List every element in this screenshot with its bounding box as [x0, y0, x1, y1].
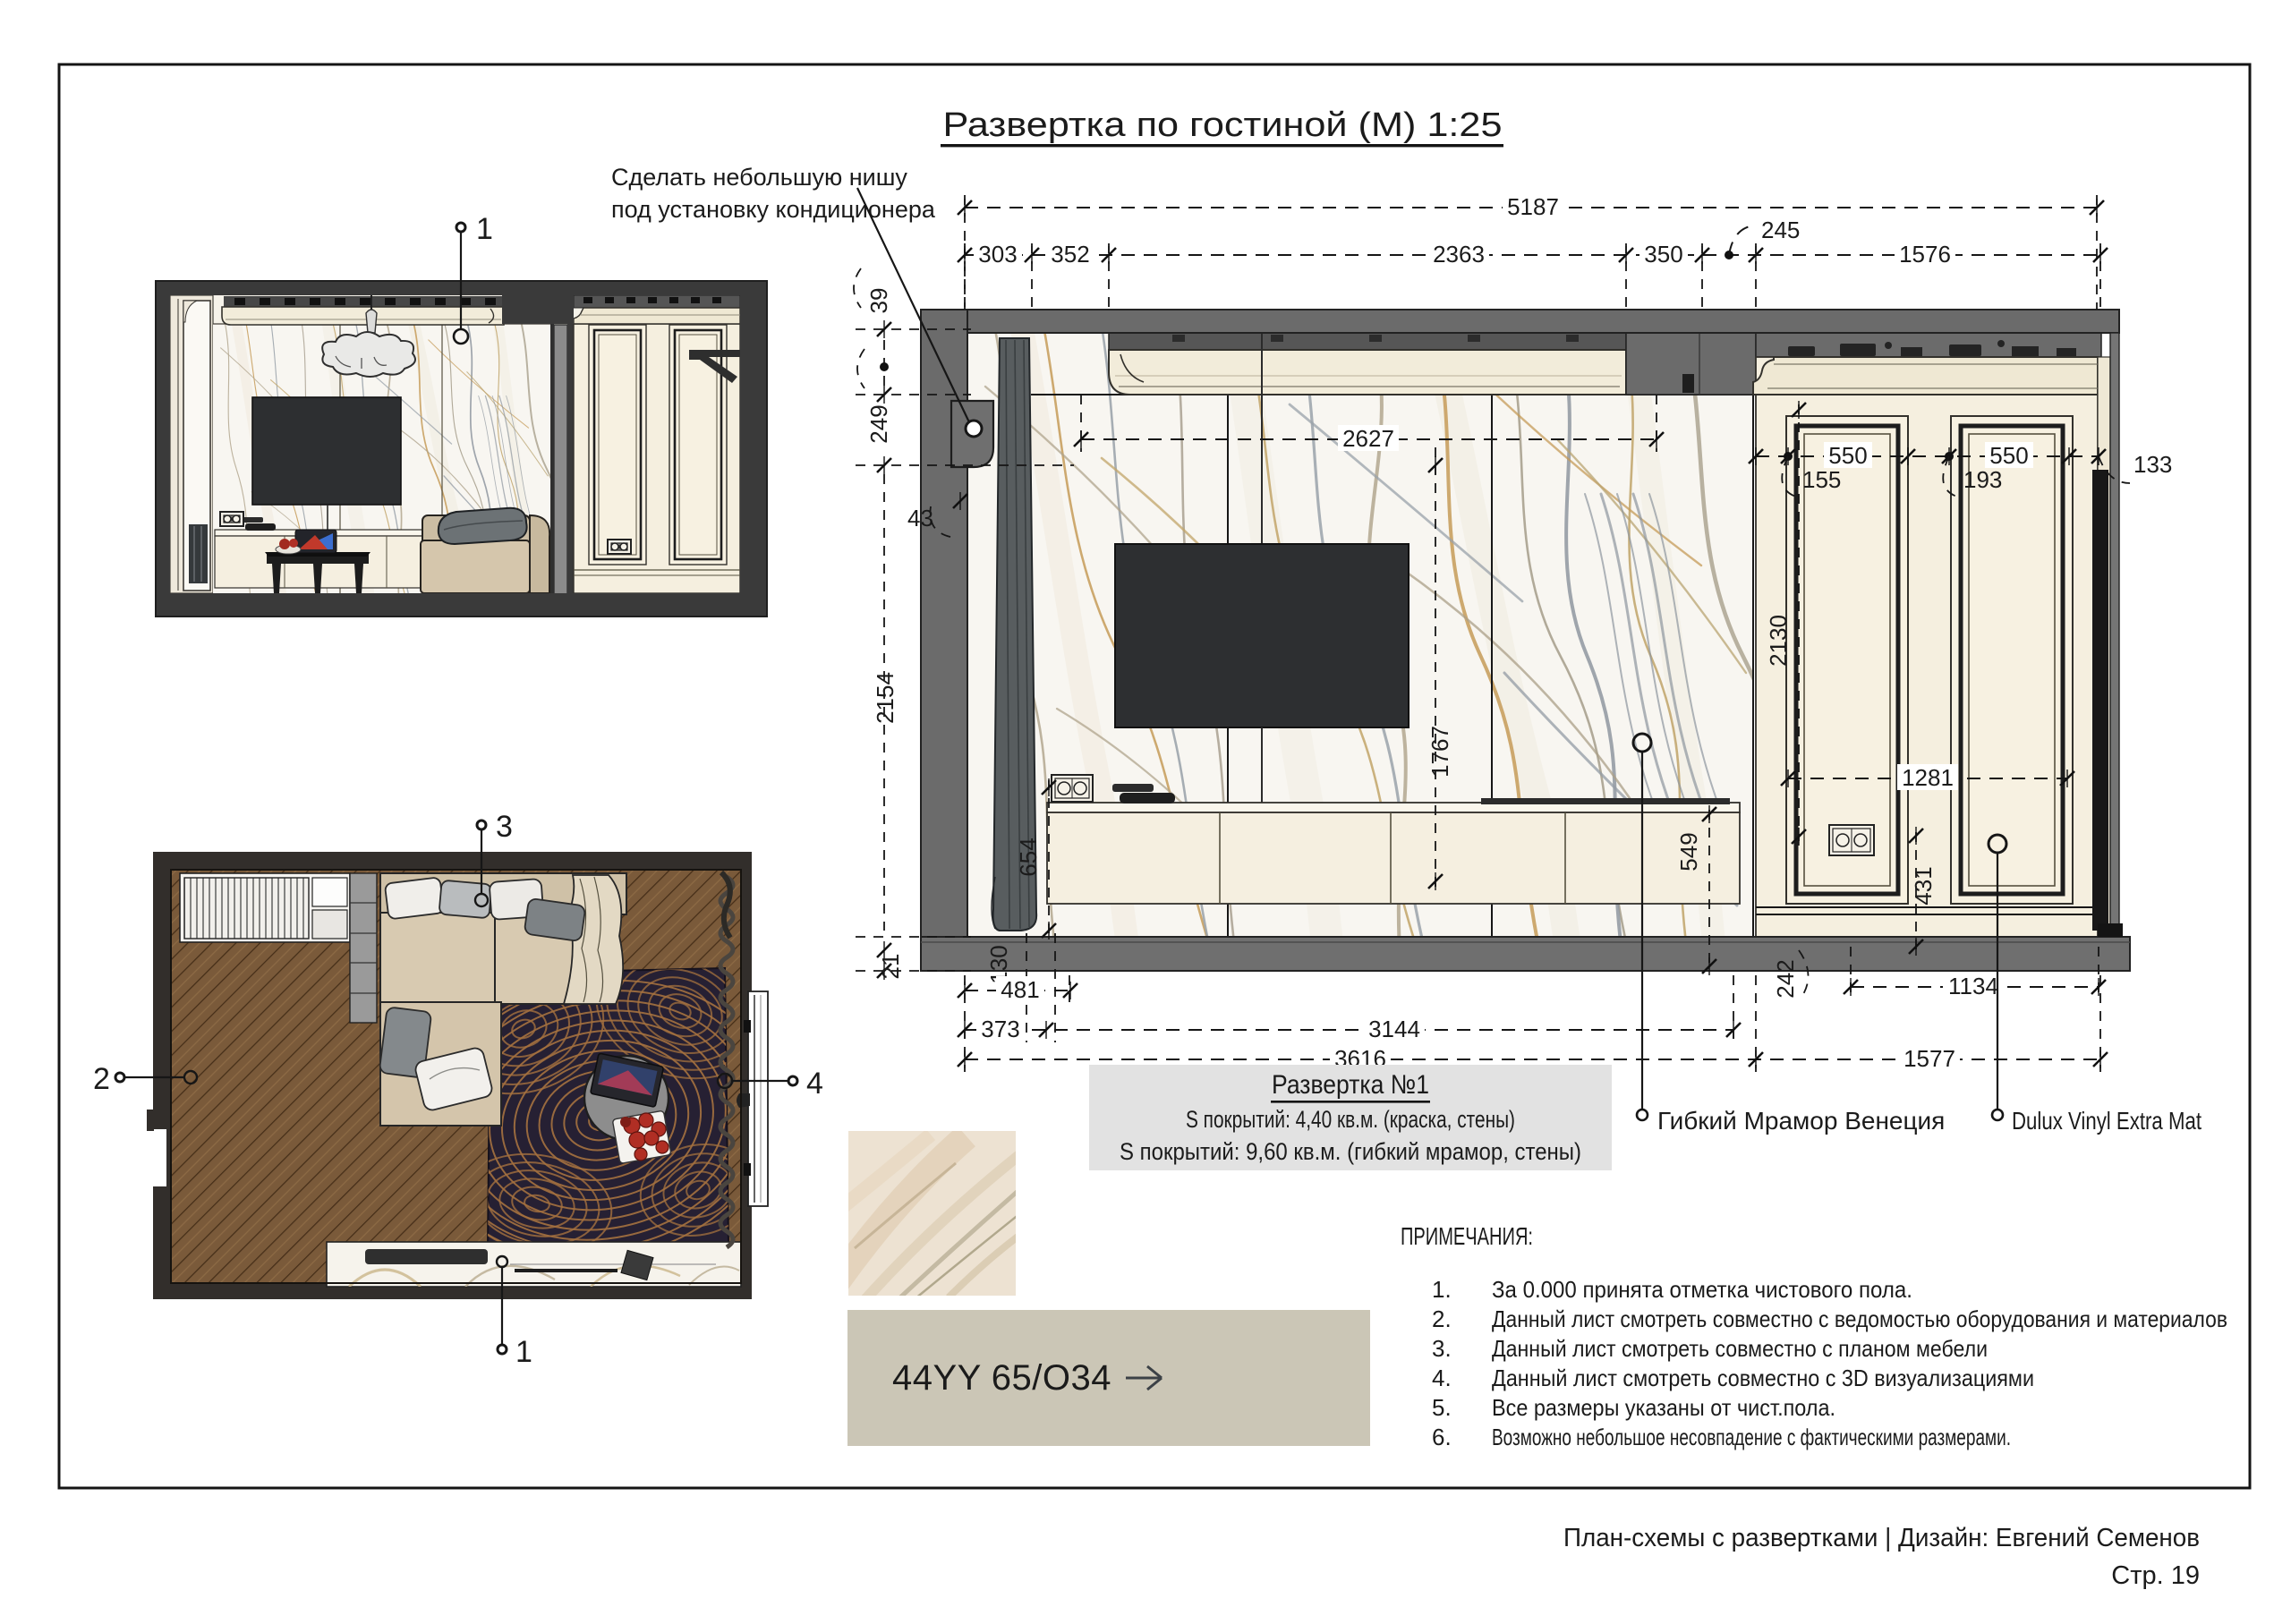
svg-text:350: 350 — [1644, 241, 1682, 268]
svg-text:Возможно небольшое несовпадени: Возможно небольшое несовпадение с фактич… — [1492, 1424, 2011, 1450]
svg-text:План-схемы с развертками | Диз: План-схемы с развертками | Дизайн: Евген… — [1563, 1524, 2200, 1552]
svg-text:Данный лист смотреть совместно: Данный лист смотреть совместно с 3D визу… — [1492, 1365, 2034, 1391]
svg-text:1281: 1281 — [1902, 764, 1954, 791]
svg-text:3.: 3. — [1432, 1335, 1452, 1362]
svg-text:1: 1 — [476, 212, 493, 246]
svg-text:За 0.000 принята отметка чисто: За 0.000 принята отметка чистового пола. — [1492, 1276, 1912, 1303]
svg-text:2154: 2154 — [872, 672, 899, 724]
svg-text:242: 242 — [1772, 959, 1799, 998]
svg-text:193: 193 — [1963, 466, 2002, 493]
svg-text:303: 303 — [978, 241, 1017, 268]
svg-text:3144: 3144 — [1368, 1016, 1420, 1042]
svg-text:1577: 1577 — [1903, 1045, 1955, 1072]
svg-text:Dulux Vinyl Extra Mat: Dulux Vinyl Extra Mat — [2012, 1107, 2202, 1135]
svg-text:2: 2 — [93, 1062, 110, 1096]
svg-text:654: 654 — [1015, 838, 1042, 876]
svg-text:2363: 2363 — [1433, 241, 1485, 268]
svg-text:43: 43 — [907, 505, 933, 531]
svg-text:431: 431 — [1910, 866, 1937, 905]
svg-text:ПРИМЕЧАНИЯ:: ПРИМЕЧАНИЯ: — [1401, 1222, 1533, 1250]
svg-text:373: 373 — [981, 1016, 1019, 1042]
svg-text:1767: 1767 — [1427, 726, 1453, 778]
svg-text:2130: 2130 — [1765, 615, 1792, 667]
svg-text:S покрытий: 4,40 кв.м. (краска: S покрытий: 4,40 кв.м. (краска, стены) — [1186, 1106, 1515, 1133]
svg-text:44YY 65/O34: 44YY 65/O34 — [892, 1358, 1111, 1398]
svg-text:Гибкий Мрамор Венеция: Гибкий Мрамор Венеция — [1657, 1107, 1945, 1135]
svg-text:1134: 1134 — [1948, 973, 1998, 999]
svg-text:Развертка по гостиной (М) 1:25: Развертка по гостиной (М) 1:25 — [943, 106, 1503, 144]
svg-text:2627: 2627 — [1342, 425, 1394, 452]
svg-text:249: 249 — [865, 404, 892, 443]
svg-text:549: 549 — [1675, 832, 1702, 871]
svg-text:5.: 5. — [1432, 1394, 1452, 1421]
svg-text:352: 352 — [1051, 241, 1089, 268]
svg-text:481: 481 — [1001, 976, 1039, 1003]
svg-text:2.: 2. — [1432, 1305, 1452, 1332]
svg-text:245: 245 — [1761, 217, 1800, 243]
svg-text:Стр. 19: Стр. 19 — [2111, 1561, 2200, 1590]
svg-text:Все размеры указаны от чист.по: Все размеры указаны от чист.пола. — [1492, 1394, 1835, 1421]
svg-text:21: 21 — [877, 954, 904, 980]
svg-text:550: 550 — [1989, 442, 2028, 469]
svg-text:Сделать небольшую нишу: Сделать небольшую нишу — [611, 164, 907, 191]
svg-text:Развертка №1: Развертка №1 — [1272, 1070, 1429, 1100]
svg-text:6.: 6. — [1432, 1424, 1452, 1450]
svg-text:4: 4 — [806, 1067, 823, 1101]
svg-text:133: 133 — [2133, 451, 2172, 478]
svg-text:1576: 1576 — [1899, 241, 1951, 268]
svg-text:под установку кондиционера: под установку кондиционера — [611, 196, 936, 223]
svg-text:4.: 4. — [1432, 1365, 1452, 1391]
svg-text:S покрытий: 9,60 кв.м. (гибкий: S покрытий: 9,60 кв.м. (гибкий мрамор, с… — [1120, 1138, 1581, 1165]
svg-text:3: 3 — [496, 810, 513, 844]
svg-text:5187: 5187 — [1507, 193, 1559, 220]
svg-text:1: 1 — [515, 1335, 532, 1369]
svg-text:550: 550 — [1828, 442, 1867, 469]
svg-text:Данный лист смотреть совместно: Данный лист смотреть совместно с планом … — [1492, 1335, 1988, 1362]
svg-text:39: 39 — [865, 288, 892, 314]
svg-text:1.: 1. — [1432, 1276, 1452, 1303]
svg-text:155: 155 — [1802, 466, 1841, 493]
svg-text:Данный лист смотреть совместно: Данный лист смотреть совместно с ведомос… — [1492, 1305, 2227, 1332]
